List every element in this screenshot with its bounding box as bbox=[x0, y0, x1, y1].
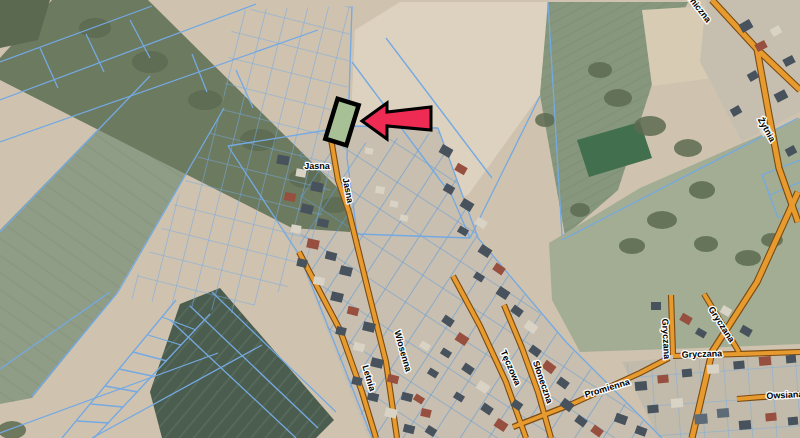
map-canvas[interactable]: JasnaJasnaLetniaWiosennaTęczowaSłoneczna… bbox=[0, 0, 800, 438]
building bbox=[651, 302, 661, 310]
building bbox=[707, 364, 720, 374]
aerial-cadastral-map: JasnaJasnaLetniaWiosennaTęczowaSłoneczna… bbox=[0, 0, 800, 438]
building bbox=[671, 398, 684, 408]
building bbox=[786, 355, 797, 364]
building bbox=[717, 408, 730, 418]
building bbox=[759, 356, 772, 366]
building bbox=[788, 417, 799, 426]
street-label: Gryczana bbox=[681, 348, 723, 359]
building bbox=[765, 413, 777, 422]
building bbox=[739, 420, 752, 430]
building bbox=[694, 413, 708, 424]
building bbox=[657, 375, 669, 384]
building bbox=[733, 361, 745, 370]
street-label: Owsiana bbox=[766, 389, 800, 401]
building bbox=[290, 224, 301, 234]
building bbox=[635, 381, 648, 391]
building bbox=[682, 369, 693, 378]
street-label: Jasna bbox=[304, 161, 331, 171]
building bbox=[647, 405, 659, 414]
